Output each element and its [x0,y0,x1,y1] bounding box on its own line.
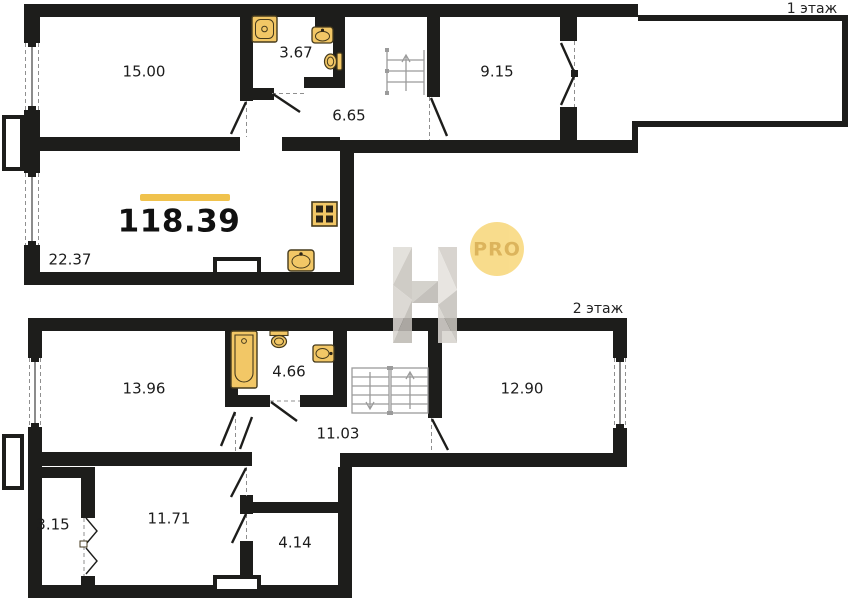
balcony-box [4,117,22,169]
door-swing [430,97,448,140]
floor-plan-canvas: 1 этаж 2 этаж 118.39 15.00 3.67 6.65 9.1… [0,0,849,600]
floor2-label: 2 этаж [573,302,623,316]
floor2-plan [4,318,627,598]
room-area-label: 12.90 [501,382,544,397]
pro-badge-text: PRO [473,241,521,260]
window [24,173,40,245]
room-area-label: 9.15 [480,65,513,80]
room-area-label: 6.65 [332,109,365,124]
window [28,358,42,427]
floor1-plan [4,4,848,285]
window [613,358,627,428]
room-area-label: 3.67 [279,46,312,61]
shower-tray-icon [252,16,277,42]
toilet-icon [325,53,343,70]
entry-niche [215,259,259,274]
floor-plan-drawing [0,0,849,600]
room-area-label: 15.00 [123,65,166,80]
double-door [560,41,578,107]
room-area-label: 13.96 [123,382,166,397]
floor1-label: 1 этаж [787,2,837,16]
door-swing [231,467,247,497]
washbasin-icon [312,27,333,43]
room-area-label: 22.37 [49,253,92,268]
door-swing [272,94,304,113]
room-area-label: 4.66 [272,365,305,380]
bathtub-icon [231,331,257,388]
window [24,43,40,110]
balcony-box [4,436,22,488]
door-swing [231,101,247,137]
room-area-label: 11.03 [317,427,360,442]
door-swing [432,418,449,452]
stove-icon [312,202,337,226]
door-swing [270,401,300,421]
total-area-value: 118.39 [118,207,241,238]
room-area-label: 11.71 [148,512,191,527]
kitchen-sink-icon [288,250,314,271]
total-area-underline [140,194,230,201]
floor1-walls [24,4,848,285]
toilet-icon [270,331,288,348]
staircase-up-down-icon [352,366,428,415]
entry-niche [215,577,259,591]
accordion-door-icon [80,518,97,576]
washbasin-icon [313,345,334,362]
door-swing [221,412,252,452]
room-area-label: 4.14 [278,536,311,551]
door-swing [232,514,247,543]
staircase-up-icon [385,48,424,95]
room-area-label: 3.15 [36,518,69,533]
